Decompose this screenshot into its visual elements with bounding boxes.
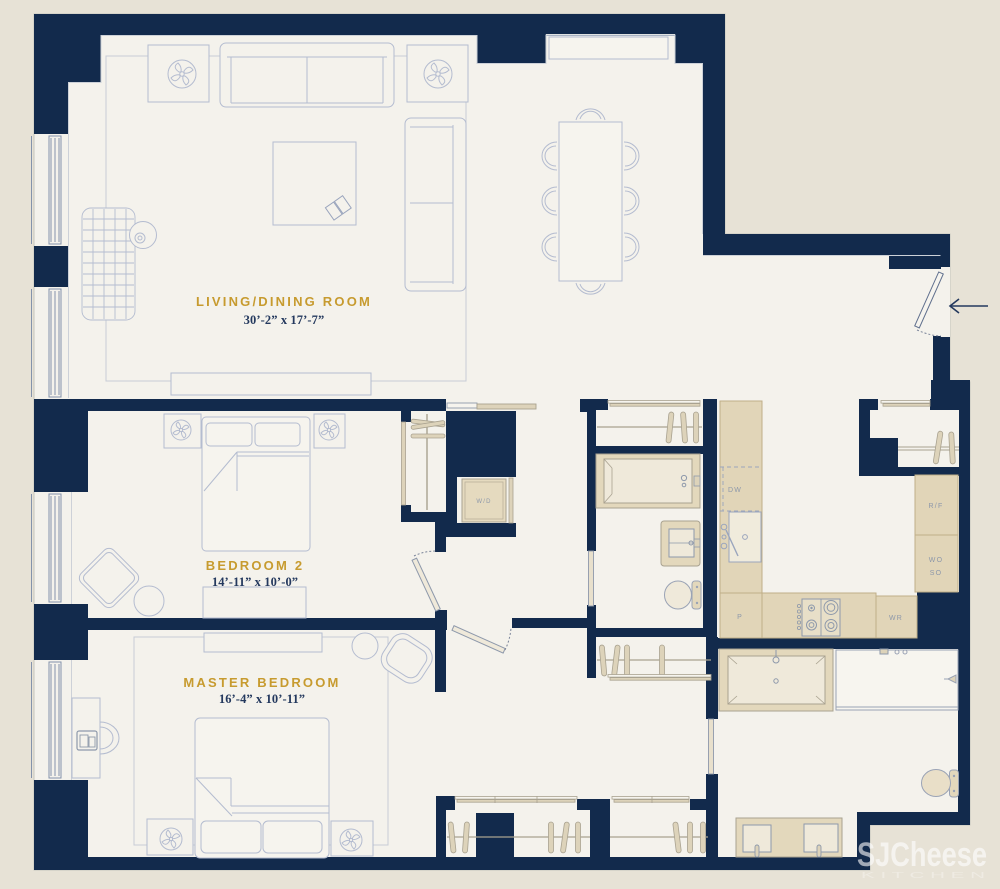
svg-text:14’-11” x 10’-0”: 14’-11” x 10’-0” — [212, 575, 298, 589]
svg-text:P: P — [737, 614, 743, 621]
svg-text:W/D: W/D — [476, 499, 491, 505]
svg-text:WR: WR — [889, 615, 903, 622]
svg-text:LIVING/DINING ROOM: LIVING/DINING ROOM — [196, 294, 372, 309]
svg-text:30’-2” x 17’-7”: 30’-2” x 17’-7” — [244, 313, 325, 327]
svg-text:SO: SO — [930, 570, 943, 577]
svg-text:R/F: R/F — [929, 503, 944, 510]
svg-text:DW: DW — [728, 487, 742, 494]
svg-text:K I T C H E N: K I T C H E N — [861, 870, 985, 880]
svg-text:MASTER BEDROOM: MASTER BEDROOM — [183, 675, 340, 690]
svg-text:WO: WO — [929, 557, 943, 564]
svg-text:16’-4” x 10’-11”: 16’-4” x 10’-11” — [219, 692, 305, 706]
svg-text:BEDROOM 2: BEDROOM 2 — [206, 558, 305, 573]
svg-text:SJCheese: SJCheese — [857, 836, 987, 874]
